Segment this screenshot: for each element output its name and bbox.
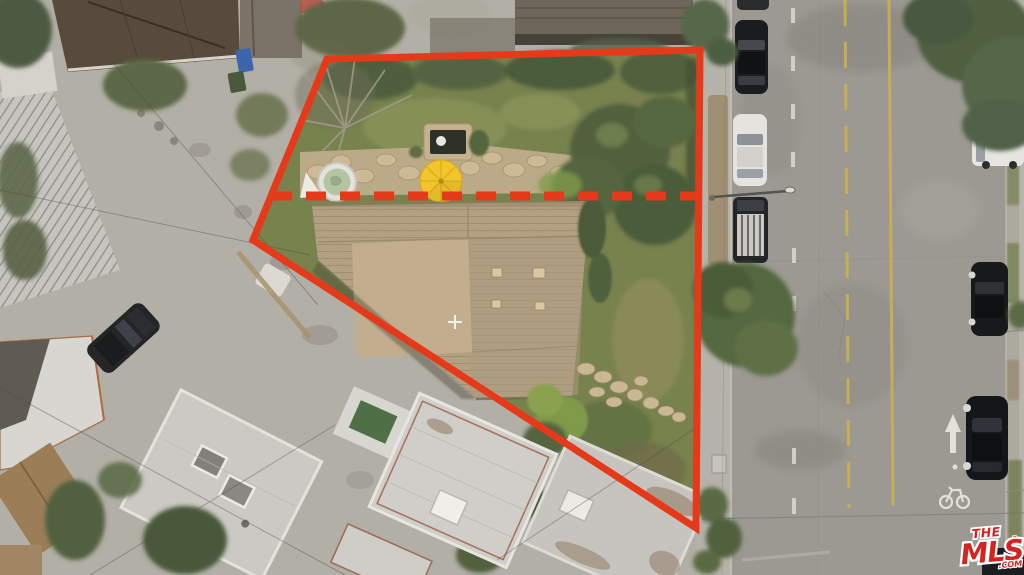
mls-logo-tm: ™ xyxy=(1012,535,1018,541)
utility-pad xyxy=(712,455,726,473)
green-trash-bin xyxy=(227,71,246,93)
aerial-photo-svg: THE MLS .COM ™ xyxy=(0,0,1024,575)
pond-bush xyxy=(469,130,489,156)
parked-truck xyxy=(733,197,768,263)
aerial-photo: THE MLS .COM ™ xyxy=(0,0,1024,575)
parked-car xyxy=(969,262,1009,336)
parked-cars-left xyxy=(733,0,769,263)
parked-car xyxy=(963,396,1008,480)
parked-car xyxy=(735,20,768,94)
parked-car xyxy=(737,0,769,10)
shed-roof-fragment xyxy=(0,545,42,575)
pond-ornament xyxy=(436,136,446,146)
parked-car xyxy=(733,114,767,186)
